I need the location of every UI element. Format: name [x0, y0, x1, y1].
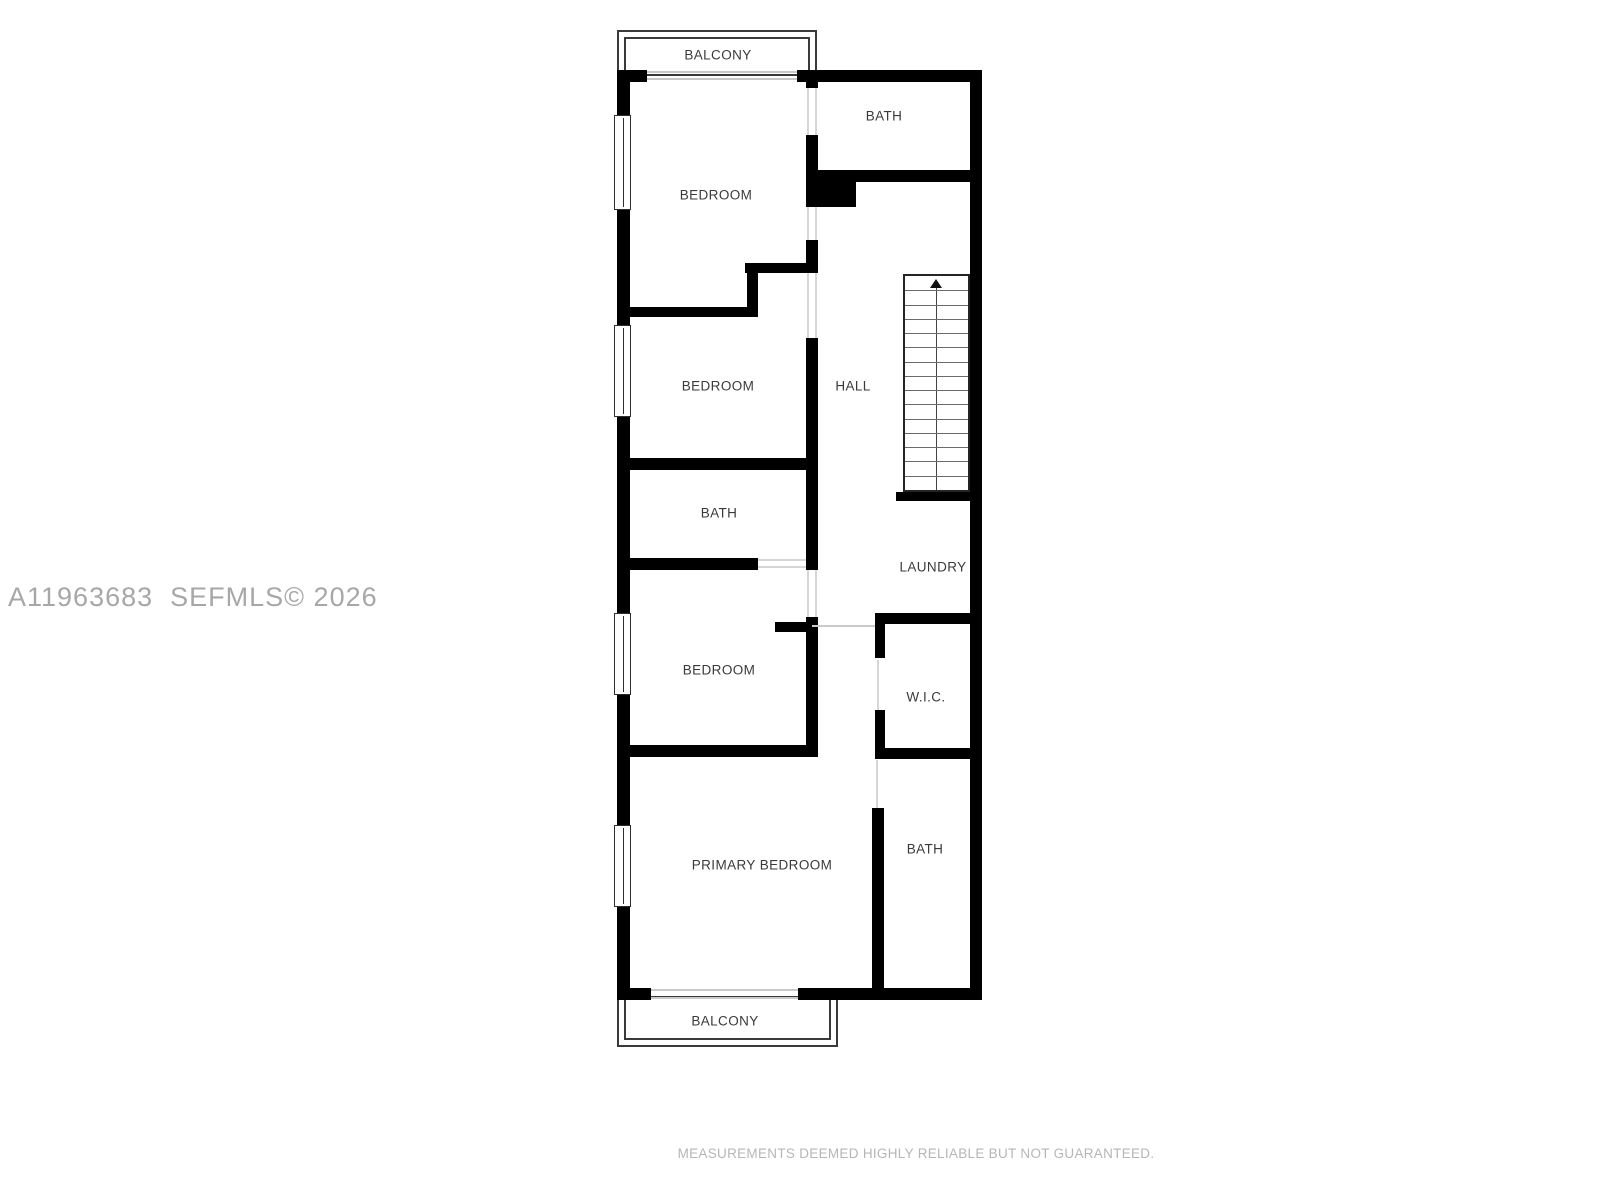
window-frame-line — [623, 328, 624, 414]
wall-top-right — [797, 70, 982, 82]
stair-tread-line — [905, 390, 968, 391]
stair-tread-line — [905, 333, 968, 334]
room-label-wic: W.I.C. — [906, 690, 945, 705]
stair-tread-line — [905, 461, 968, 462]
door-opening-bath-primary — [876, 760, 878, 808]
room-label-laundry: LAUNDRY — [899, 560, 966, 575]
stairs-up-arrow-icon — [930, 279, 942, 288]
balcony-bottom-door-line — [651, 997, 798, 999]
window-frame-line — [623, 828, 624, 904]
stair-tread-line — [905, 376, 968, 377]
passage-opening-line — [812, 625, 875, 627]
door-opening-bath-top — [807, 88, 809, 135]
stair-tread-line — [905, 362, 968, 363]
balcony-top-door-line — [647, 71, 797, 73]
room-label-bedroom-mid: BEDROOM — [682, 379, 755, 394]
stair-tread-line — [905, 290, 968, 291]
door-opening-bath-mid — [758, 559, 806, 561]
wall-bedroom-lower-bottom — [627, 745, 818, 757]
wall-bath-mid-bottom — [628, 558, 758, 570]
window — [614, 613, 631, 695]
wall-hall-seg-e — [806, 617, 818, 757]
room-label-bath-primary: BATH — [907, 842, 944, 857]
window — [614, 825, 631, 907]
wall-bedroom-top-bottom — [628, 307, 758, 317]
window — [614, 325, 631, 417]
room-label-bath-top: BATH — [866, 109, 903, 124]
stair-tread-line — [905, 404, 968, 405]
wall-hall-seg-d — [806, 338, 818, 570]
wall-right — [970, 70, 982, 1000]
door-opening-bedroom-mid — [815, 273, 817, 338]
stair-tread-line — [905, 305, 968, 306]
stair-tread-line — [905, 319, 968, 320]
door-opening-bedroom-top — [815, 207, 817, 240]
stair-tread-line — [905, 347, 968, 348]
room-label-balcony-top: BALCONY — [684, 48, 751, 63]
room-label-bedroom-lower: BEDROOM — [683, 663, 756, 678]
wall-wic-top — [875, 613, 970, 624]
wall-hall-seg-c — [806, 240, 818, 265]
wall-wic-left-upper — [875, 613, 885, 658]
wall-hall-seg-a — [806, 70, 818, 88]
wall-bath-top-bottom — [818, 170, 970, 182]
stair-tread-line — [905, 476, 968, 477]
door-opening-bedroom-mid — [807, 273, 809, 338]
door-opening-bedroom-top — [807, 207, 809, 240]
staircase — [903, 274, 970, 492]
wall-bath-primary-left — [872, 808, 884, 1000]
window-frame-line — [623, 118, 624, 207]
door-opening-bedroom-lower — [807, 570, 809, 617]
door-opening-wic — [877, 660, 879, 710]
window — [614, 115, 631, 210]
stair-tread-line — [905, 433, 968, 434]
window-frame-line — [623, 616, 624, 692]
room-label-primary-bedroom: PRIMARY BEDROOM — [692, 858, 833, 873]
room-label-bedroom-top: BEDROOM — [680, 188, 753, 203]
door-opening-bath-mid — [758, 566, 806, 568]
stair-tread-line — [905, 419, 968, 420]
wall-wic-bottom — [875, 748, 970, 759]
balcony-top-door-line — [647, 78, 797, 80]
room-label-balcony-bottom: BALCONY — [691, 1014, 758, 1029]
wall-hall-seg-b — [806, 135, 818, 172]
room-label-bath-mid: BATH — [701, 506, 738, 521]
door-opening-bedroom-lower — [815, 570, 817, 617]
wall-bedroom-bath-divider — [628, 458, 818, 470]
mls-watermark: A11963683 SEFMLS© 2026 — [8, 582, 378, 613]
door-opening-bath-top — [815, 88, 817, 135]
wall-bottom-left — [617, 988, 651, 1000]
wall-hall-stub — [775, 622, 812, 632]
stair-tread-line — [905, 447, 968, 448]
wall-stairs-bottom — [896, 492, 970, 501]
wall-bottom-right — [798, 988, 982, 1000]
balcony-bottom-door-line — [651, 989, 798, 991]
room-label-hall: HALL — [835, 379, 870, 394]
measurement-disclaimer: MEASUREMENTS DEEMED HIGHLY RELIABLE BUT … — [616, 1146, 1216, 1161]
floor-plan-canvas: BALCONY BEDROOM BATH HALL BEDROOM BATH L… — [0, 0, 1600, 1200]
